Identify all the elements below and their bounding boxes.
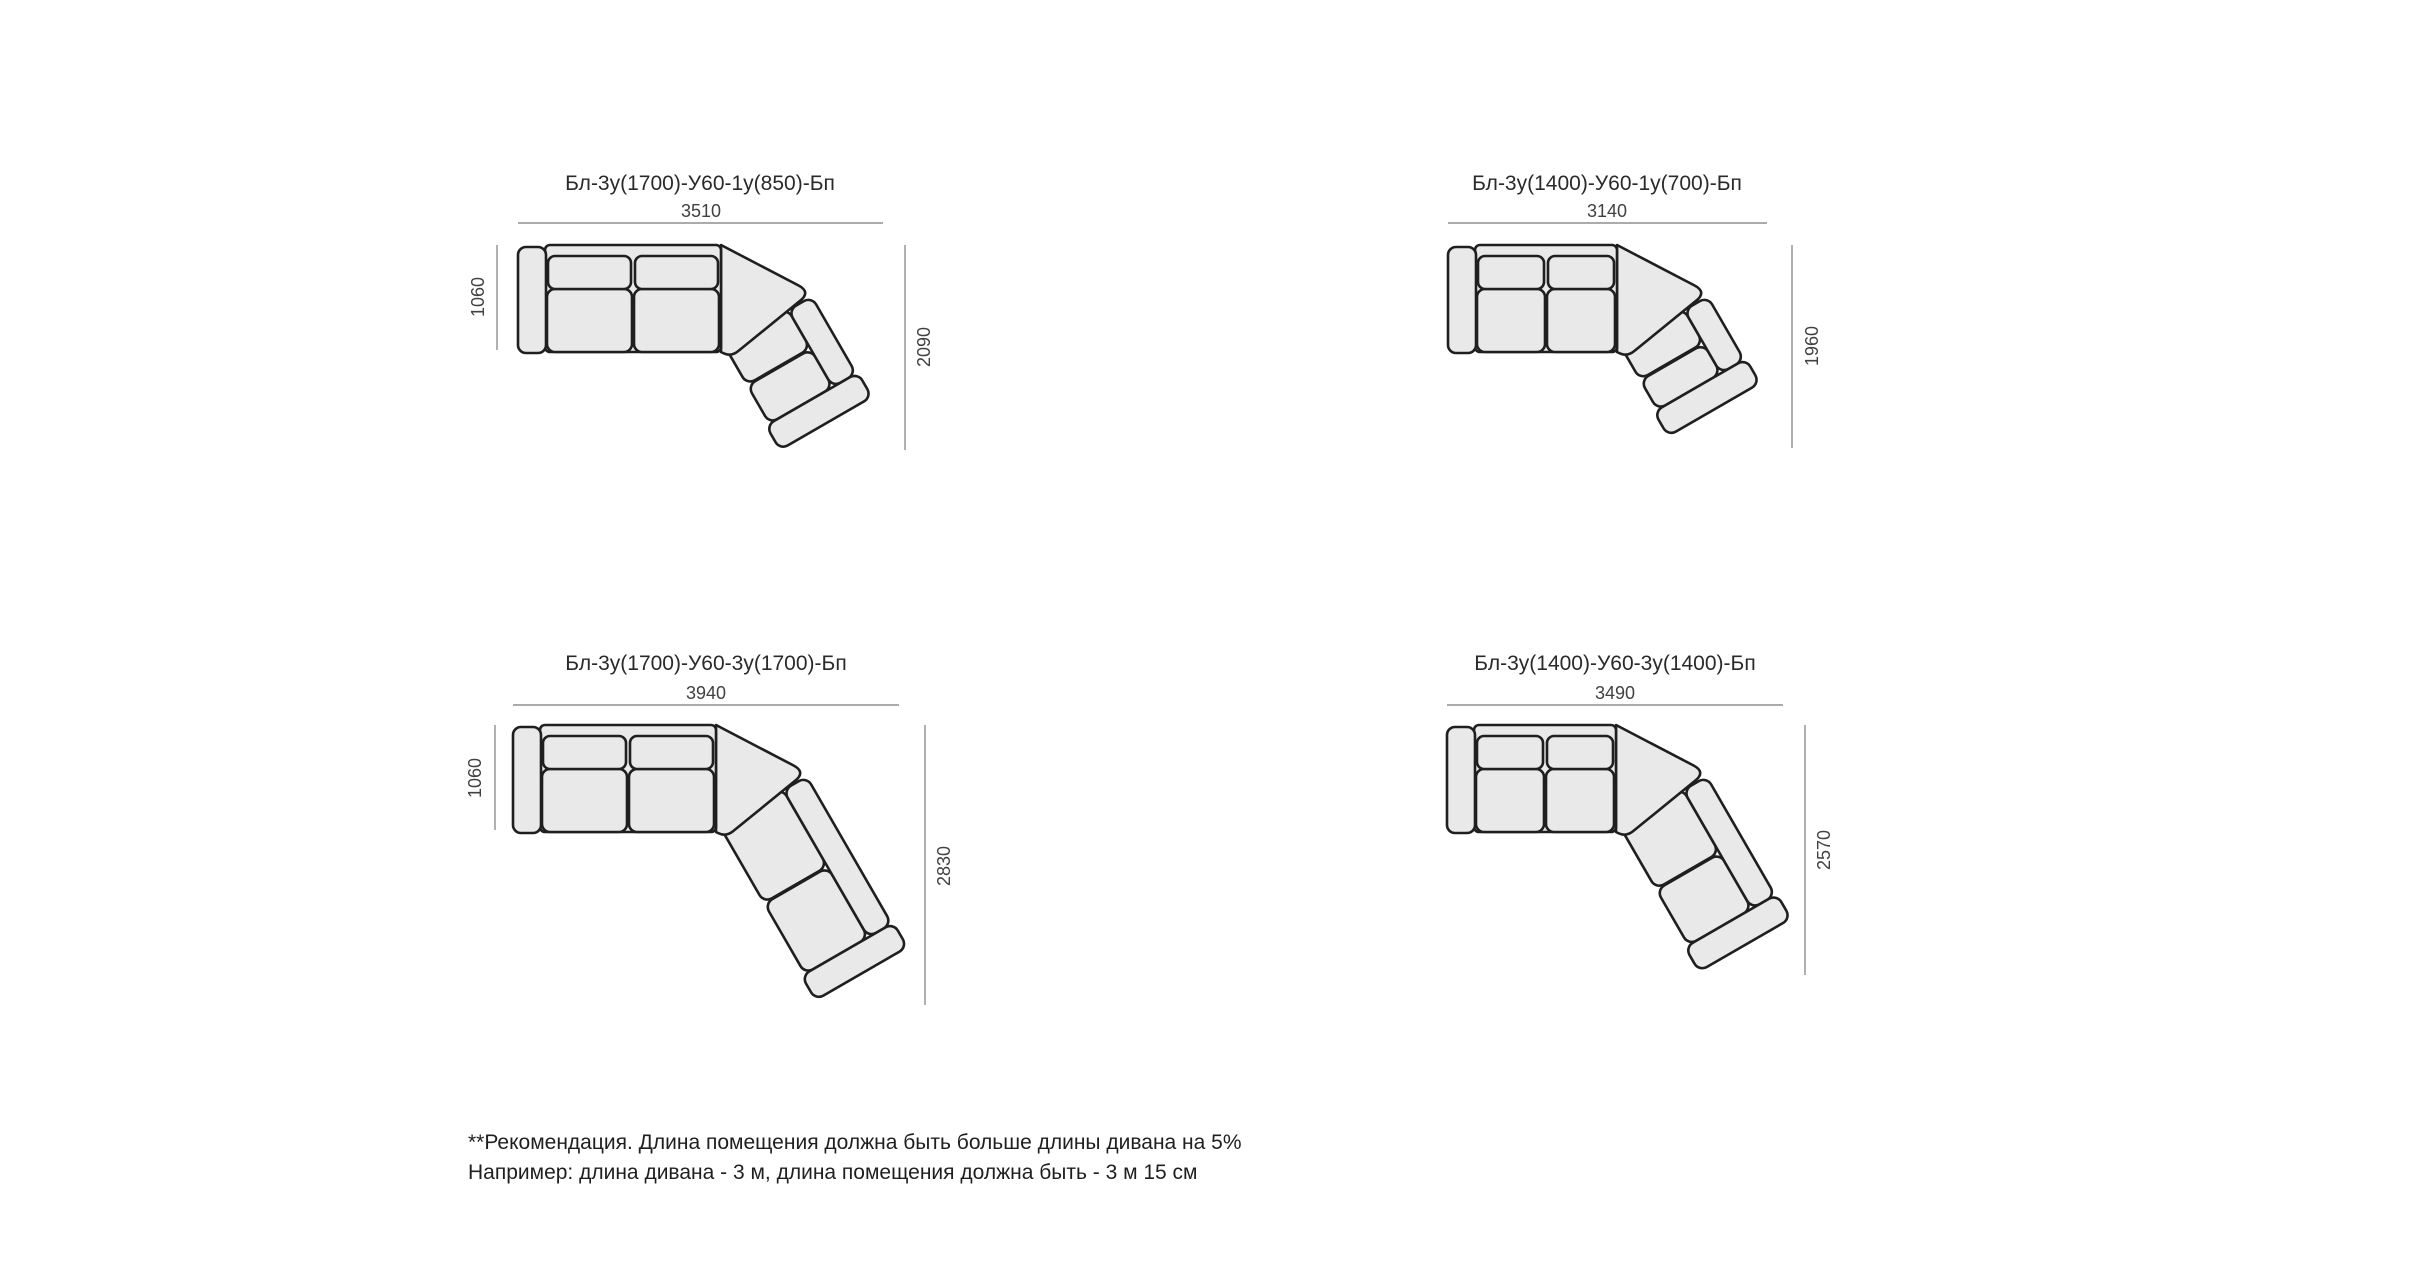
seat-module-1	[1476, 769, 1544, 832]
seat-module-1	[547, 289, 632, 352]
left-armrest	[1448, 247, 1476, 353]
dim-label-height-top-right: 1960	[1802, 326, 1822, 366]
furniture-scheme-page: Бл-3у(1700)-У60-1у(850)-Бп 3510 1060 209…	[0, 0, 2428, 1280]
diagram-title-bottom-left: Бл-3у(1700)-У60-3у(1700)-Бп	[565, 652, 846, 675]
back-cushion-2	[1548, 256, 1614, 289]
recommendation-footnote: **Рекомендация. Длина помещения должна б…	[468, 1128, 1242, 1188]
dim-label-height-bottom-right: 2570	[1814, 830, 1834, 870]
back-cushion-1	[548, 256, 631, 289]
back-cushion-2	[635, 256, 718, 289]
dim-label-width-bottom-left: 3940	[686, 683, 726, 703]
sofa-drawing-top-left	[497, 223, 905, 450]
seat-module-2	[1547, 289, 1615, 352]
back-cushion-1	[1477, 736, 1543, 769]
dim-label-depth-bottom-left: 1060	[465, 758, 485, 798]
back-cushion-2	[1547, 736, 1613, 769]
diagram-title-top-right: Бл-3у(1400)-У60-1у(700)-Бп	[1472, 172, 1742, 195]
dim-label-width-top-left: 3510	[681, 201, 721, 221]
seat-module-2	[629, 769, 714, 832]
footnote-line-1: **Рекомендация. Длина помещения должна б…	[468, 1128, 1242, 1158]
sofa-drawing-bottom-left	[495, 705, 925, 1005]
seat-module-2	[1546, 769, 1614, 832]
dim-label-width-bottom-right: 3490	[1595, 683, 1635, 703]
dim-label-depth-top-left: 1060	[468, 277, 488, 317]
dim-label-height-bottom-left: 2830	[934, 846, 954, 886]
diagram-title-bottom-right: Бл-3у(1400)-У60-3у(1400)-Бп	[1474, 652, 1755, 675]
dim-label-height-top-left: 2090	[914, 327, 934, 367]
left-armrest	[1447, 727, 1475, 833]
seat-module-2	[634, 289, 719, 352]
seat-module-1	[1477, 289, 1545, 352]
dim-label-width-top-right: 3140	[1587, 201, 1627, 221]
sofa-drawing-bottom-right	[1447, 705, 1805, 975]
footnote-line-2: Например: длина дивана - 3 м, длина поме…	[468, 1158, 1242, 1188]
left-armrest	[513, 727, 541, 833]
seat-module-1	[542, 769, 627, 832]
back-cushion-1	[1478, 256, 1544, 289]
sofa-drawing-top-right	[1448, 223, 1792, 448]
back-cushion-2	[630, 736, 713, 769]
diagram-title-top-left: Бл-3у(1700)-У60-1у(850)-Бп	[565, 172, 835, 195]
back-cushion-1	[543, 736, 626, 769]
left-armrest	[518, 247, 546, 353]
sofa-diagrams-canvas: Бл-3у(1700)-У60-1у(850)-Бп 3510 1060 209…	[0, 0, 2428, 1280]
